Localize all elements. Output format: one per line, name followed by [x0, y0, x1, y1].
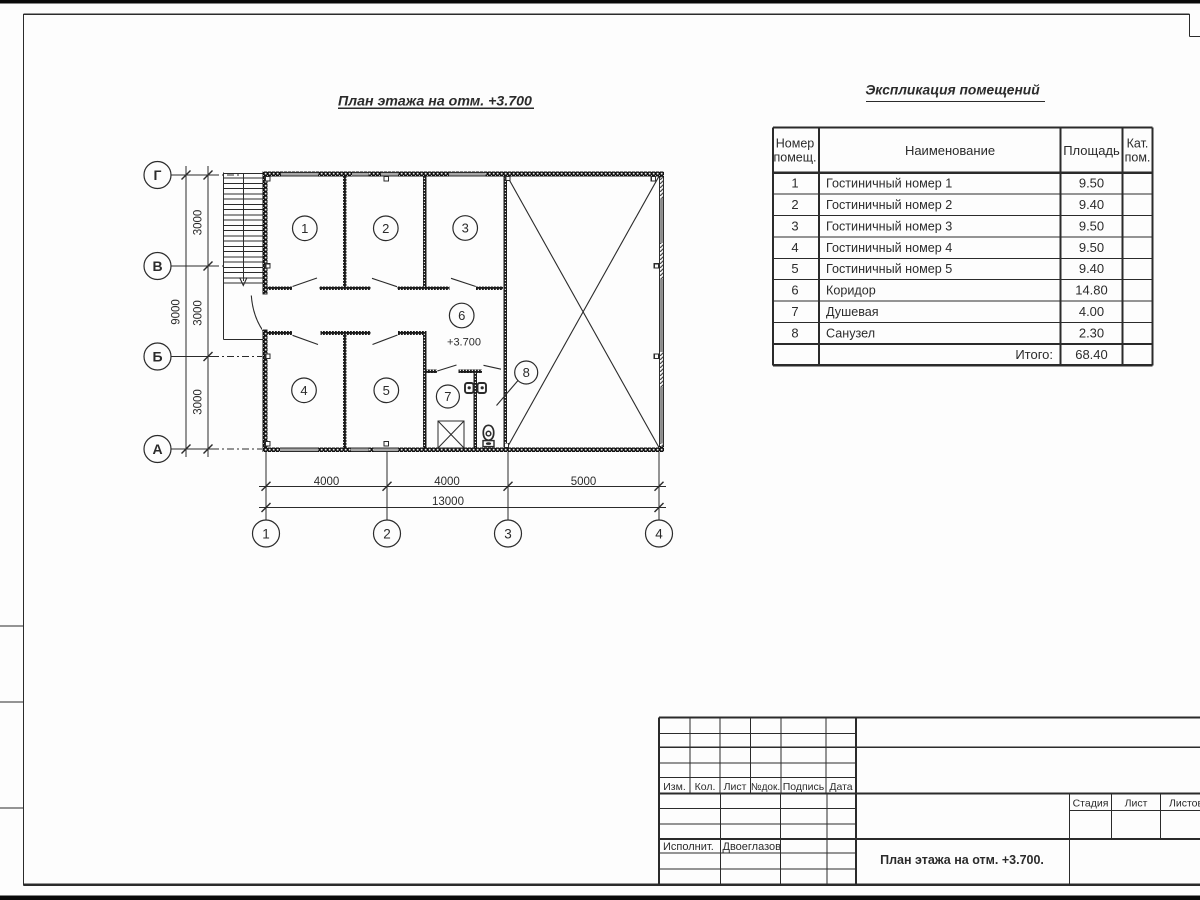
svg-text:Наименование: Наименование — [905, 143, 995, 158]
svg-text:Гостиничный номер 1: Гостиничный номер 1 — [826, 177, 952, 191]
svg-text:1: 1 — [791, 176, 798, 191]
svg-text:Двоеглазов: Двоеглазов — [723, 841, 782, 853]
svg-text:пом.: пом. — [1125, 151, 1151, 165]
svg-text:2: 2 — [382, 221, 389, 236]
svg-text:Стадия: Стадия — [1073, 798, 1109, 810]
svg-text:3000: 3000 — [193, 210, 205, 236]
svg-text:Кат.: Кат. — [1127, 137, 1149, 151]
svg-text:Г: Г — [154, 167, 162, 183]
svg-text:8: 8 — [791, 325, 798, 340]
svg-text:Гостиничный номер 5: Гостиничный номер 5 — [826, 262, 952, 276]
svg-text:помещ.: помещ. — [773, 151, 816, 165]
svg-text:Гостиничный номер 4: Гостиничный номер 4 — [826, 241, 952, 255]
svg-text:2.30: 2.30 — [1079, 325, 1104, 340]
svg-text:План этажа на отм. +3.700.: План этажа на отм. +3.700. — [880, 853, 1044, 867]
svg-text:Санузел: Санузел — [826, 326, 875, 340]
svg-text:Подпись: Подпись — [783, 781, 825, 793]
svg-text:3: 3 — [504, 527, 512, 542]
svg-text:3: 3 — [462, 221, 469, 236]
svg-text:4000: 4000 — [314, 476, 340, 488]
svg-text:13000: 13000 — [432, 496, 464, 508]
svg-text:Гостиничный номер 2: Гостиничный номер 2 — [826, 198, 952, 212]
svg-text:Душевая: Душевая — [826, 305, 879, 319]
svg-text:1: 1 — [262, 527, 270, 542]
svg-text:А: А — [152, 441, 162, 457]
svg-text:14.80: 14.80 — [1075, 283, 1108, 298]
svg-text:6: 6 — [458, 308, 465, 323]
svg-text:6: 6 — [791, 283, 798, 298]
svg-text:68.40: 68.40 — [1075, 347, 1108, 362]
svg-text:1: 1 — [301, 221, 308, 236]
svg-text:4: 4 — [791, 240, 798, 255]
svg-text:9000: 9000 — [171, 299, 183, 325]
svg-text:9.50: 9.50 — [1079, 240, 1104, 255]
svg-text:9.50: 9.50 — [1079, 218, 1104, 233]
svg-text:2: 2 — [383, 527, 391, 542]
svg-text:4000: 4000 — [434, 476, 460, 488]
svg-text:Листов: Листов — [1169, 798, 1200, 810]
svg-text:5000: 5000 — [571, 476, 597, 488]
svg-text:Коридор: Коридор — [826, 284, 876, 298]
svg-text:Номер: Номер — [776, 137, 815, 151]
svg-text:3000: 3000 — [193, 300, 205, 326]
svg-text:8: 8 — [523, 365, 530, 380]
svg-text:Лист: Лист — [724, 781, 747, 793]
svg-text:3: 3 — [791, 218, 798, 233]
svg-text:3000: 3000 — [193, 389, 205, 415]
svg-text:В: В — [152, 258, 162, 274]
svg-text:Экспликация помещений: Экспликация помещений — [865, 83, 1040, 98]
svg-text:№док.: №док. — [751, 782, 780, 793]
svg-text:9.40: 9.40 — [1079, 261, 1104, 276]
svg-text:Исполнит.: Исполнит. — [663, 841, 714, 853]
svg-text:9.50: 9.50 — [1079, 176, 1104, 191]
svg-text:5: 5 — [791, 261, 798, 276]
svg-text:9.40: 9.40 — [1079, 197, 1104, 212]
svg-text:4.00: 4.00 — [1079, 304, 1104, 319]
svg-text:4: 4 — [655, 527, 663, 542]
svg-text:Б: Б — [152, 349, 162, 365]
svg-text:4: 4 — [300, 383, 307, 398]
svg-text:Лист: Лист — [1125, 798, 1148, 810]
svg-text:Изм.: Изм. — [663, 781, 686, 793]
svg-text:План этажа на отм. +3.700: План этажа на отм. +3.700 — [338, 94, 532, 110]
svg-text:Кол.: Кол. — [695, 781, 716, 793]
svg-text:2: 2 — [791, 197, 798, 212]
svg-text:Дата: Дата — [829, 781, 852, 793]
svg-text:Гостиничный номер 3: Гостиничный номер 3 — [826, 219, 952, 233]
svg-text:7: 7 — [791, 304, 798, 319]
svg-text:Итого:: Итого: — [1015, 347, 1053, 362]
svg-text:+3.700: +3.700 — [447, 337, 481, 349]
svg-text:7: 7 — [444, 389, 451, 404]
svg-text:Площадь: Площадь — [1063, 143, 1120, 158]
svg-text:5: 5 — [383, 383, 390, 398]
